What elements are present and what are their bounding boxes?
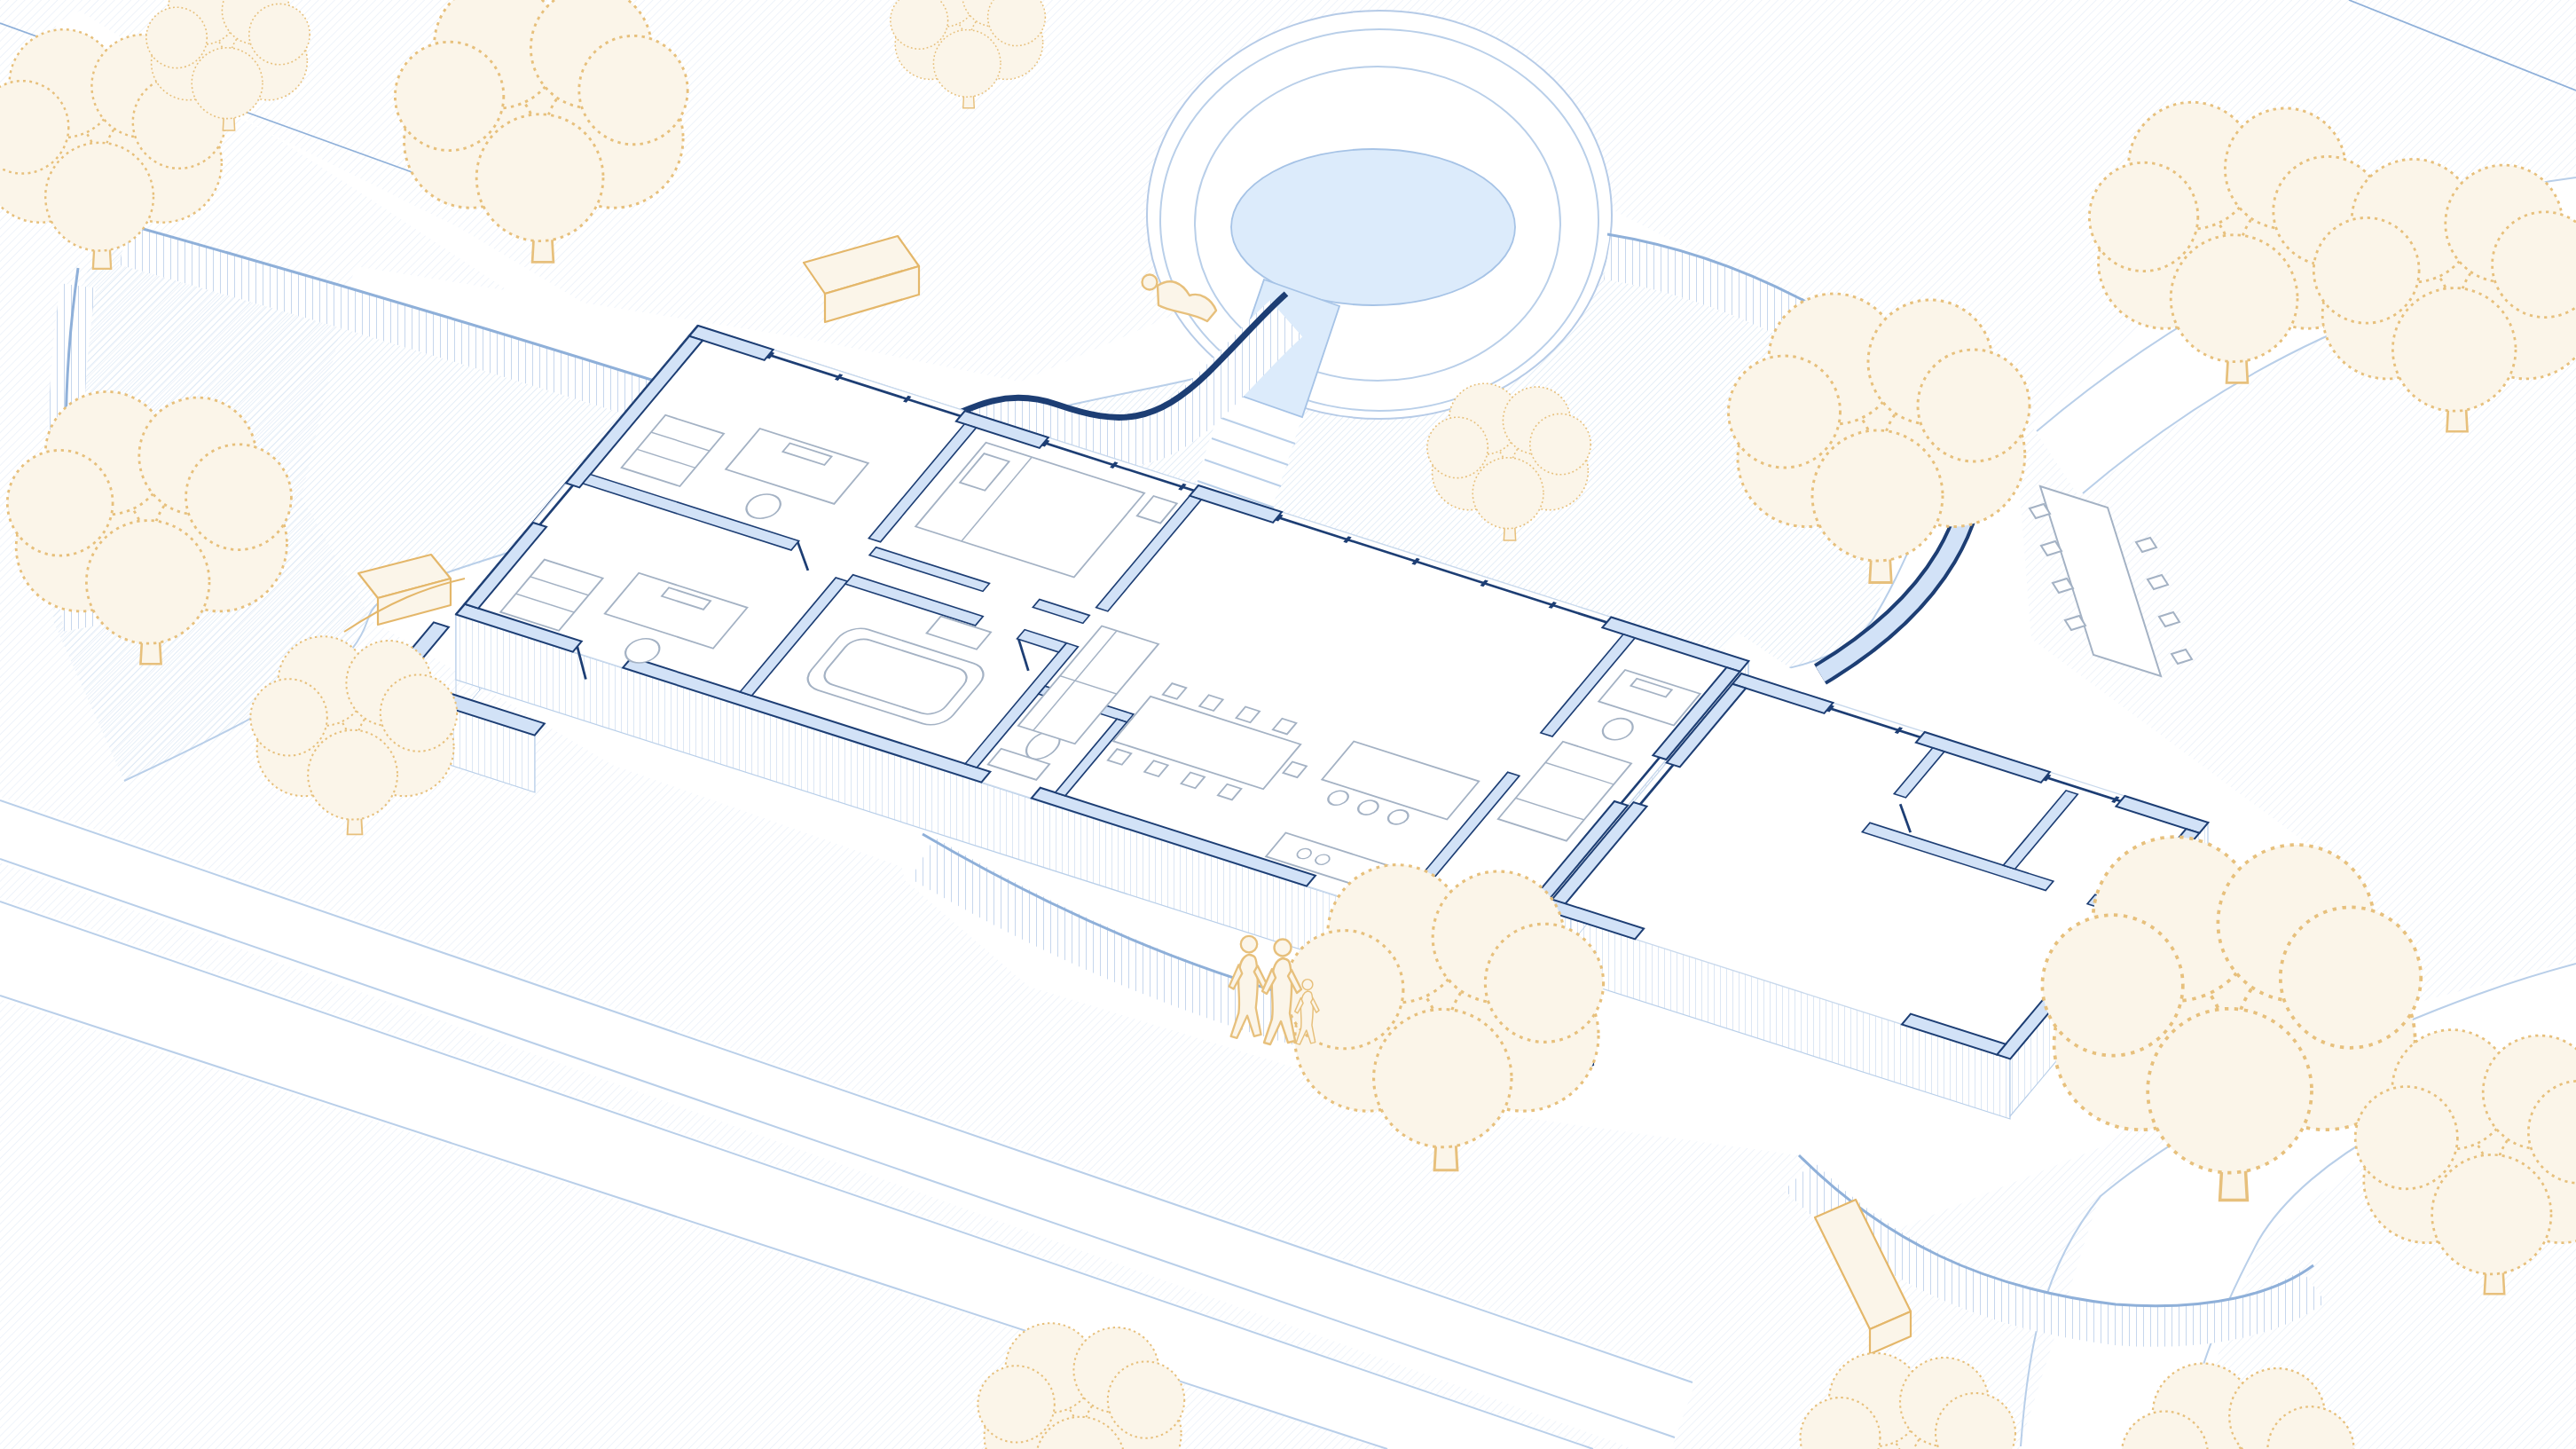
- pool-water: [1231, 149, 1515, 305]
- site-plan-drawing: [0, 0, 2576, 1449]
